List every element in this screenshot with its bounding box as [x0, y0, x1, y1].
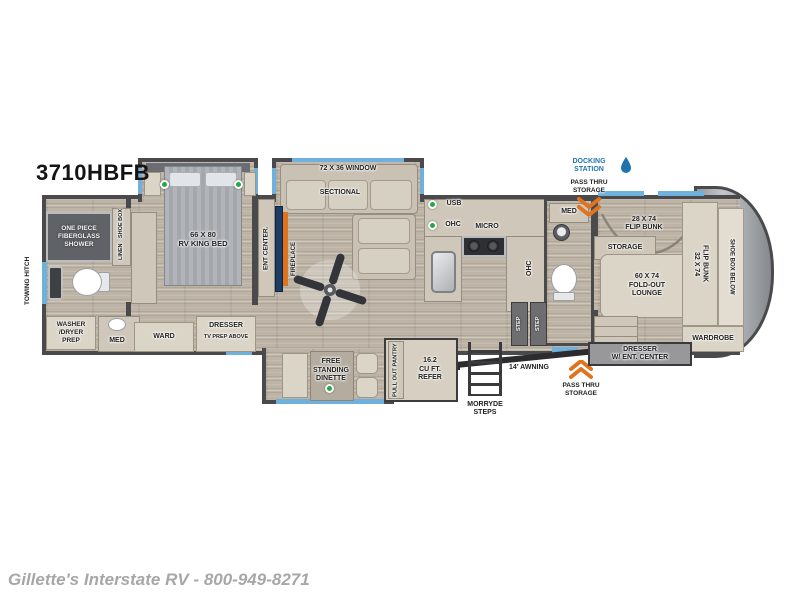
toilet-half-tank: [553, 292, 575, 301]
ent-center-label: ENT CENTER.: [258, 201, 275, 295]
window-72-label: 72 X 36 WINDOW: [296, 163, 400, 175]
chaise-cushion-1: [358, 218, 410, 244]
bed-light-right: [234, 180, 243, 189]
tv-prep-label: TV PREP ABOVE: [198, 332, 254, 342]
ohc-led-dot: [428, 221, 437, 230]
shower-label: ONE PIECE FIBERGLASS SHOWER: [48, 214, 110, 260]
pillow-right: [205, 172, 237, 187]
docking-station-label: DOCKING STATION: [560, 156, 618, 176]
dinette-light-dot: [325, 384, 334, 393]
dresser-label: DRESSER: [198, 320, 254, 332]
ohc-label: OHC: [441, 220, 465, 231]
micro-label: MICRO: [468, 222, 506, 233]
refer-label: 16.2 CU FT. REFER: [406, 346, 454, 394]
towing-hitch-label: TOWING HITCH: [20, 246, 36, 316]
pantry-label: PULL OUT PANTRY: [388, 342, 404, 398]
dresser-ent-label: DRESSER W/ ENT. CENTER: [590, 344, 690, 364]
morryde-steps-ladder: [468, 342, 502, 396]
kitchen-sink: [431, 251, 456, 293]
burner-2: [487, 240, 499, 252]
burner-1: [468, 240, 480, 252]
toilet-front-bowl: [72, 268, 102, 296]
shoe-box-below-label: SHOE BOX BELOW: [718, 210, 744, 324]
sectional-label: SECTIONAL: [298, 186, 382, 200]
half-bath-sink: [553, 224, 570, 241]
med-front-label: MED: [96, 334, 138, 348]
usb-label: USB: [441, 199, 467, 210]
linen-label: LINEN: [112, 238, 131, 266]
tv: [275, 206, 283, 292]
flip-bunk-28-label: 28 X 74 FLIP BUNK: [602, 212, 686, 236]
floorplan-canvas: 3710HBFB Gillette's Interstate RV - 800-…: [0, 0, 800, 600]
living-window-right: [420, 168, 424, 194]
ohc-island-label: OHC: [522, 250, 538, 286]
storage-label: STORAGE: [594, 238, 656, 258]
pass-thru-bottom-label: PASS THRU STORAGE: [546, 381, 616, 399]
shoe-box-label: SHOE BOX: [112, 208, 131, 238]
bunk-window-2: [658, 191, 704, 196]
front-window-accent: [42, 262, 47, 304]
bedroom-closet: [131, 212, 157, 304]
model-number: 3710HBFB: [36, 160, 150, 186]
ward-label: WARD: [134, 324, 194, 350]
fireplace-label: FIREPLACE: [288, 222, 301, 296]
usb-led-dot: [428, 200, 437, 209]
nightstand-right: [244, 172, 256, 196]
flip-bunk-32-label: 32 X 74 FLIP BUNK: [684, 206, 716, 322]
washer-dryer-label: WASHER /DRYER PREP: [46, 317, 96, 349]
wardrobe-label: WARDROBE: [682, 328, 744, 350]
living-window-top: [292, 158, 404, 162]
bath-sink: [108, 318, 126, 331]
step-1-label: STEP: [511, 303, 528, 345]
step-2-label: STEP: [530, 303, 547, 345]
awning-label: 14' AWNING: [500, 362, 558, 374]
king-bed-label: 66 X 80 RV KING BED: [166, 226, 240, 252]
living-window-left: [272, 168, 276, 194]
morryde-steps-label: MORRYDE STEPS: [448, 399, 522, 419]
dealer-footer: Gillette's Interstate RV - 800-949-8271: [8, 570, 310, 590]
pillow-left: [169, 172, 201, 187]
toilet-half-bowl: [551, 264, 577, 294]
front-window: [48, 266, 63, 300]
pass-thru-down-chevron: [576, 196, 602, 216]
pass-thru-top-label: PASS THRU STORAGE: [560, 178, 618, 196]
bed-light-left: [160, 180, 169, 189]
water-drop-icon: [620, 157, 632, 174]
lounge-label: 60 X 74 FOLD-OUT LOUNGE: [602, 258, 692, 314]
